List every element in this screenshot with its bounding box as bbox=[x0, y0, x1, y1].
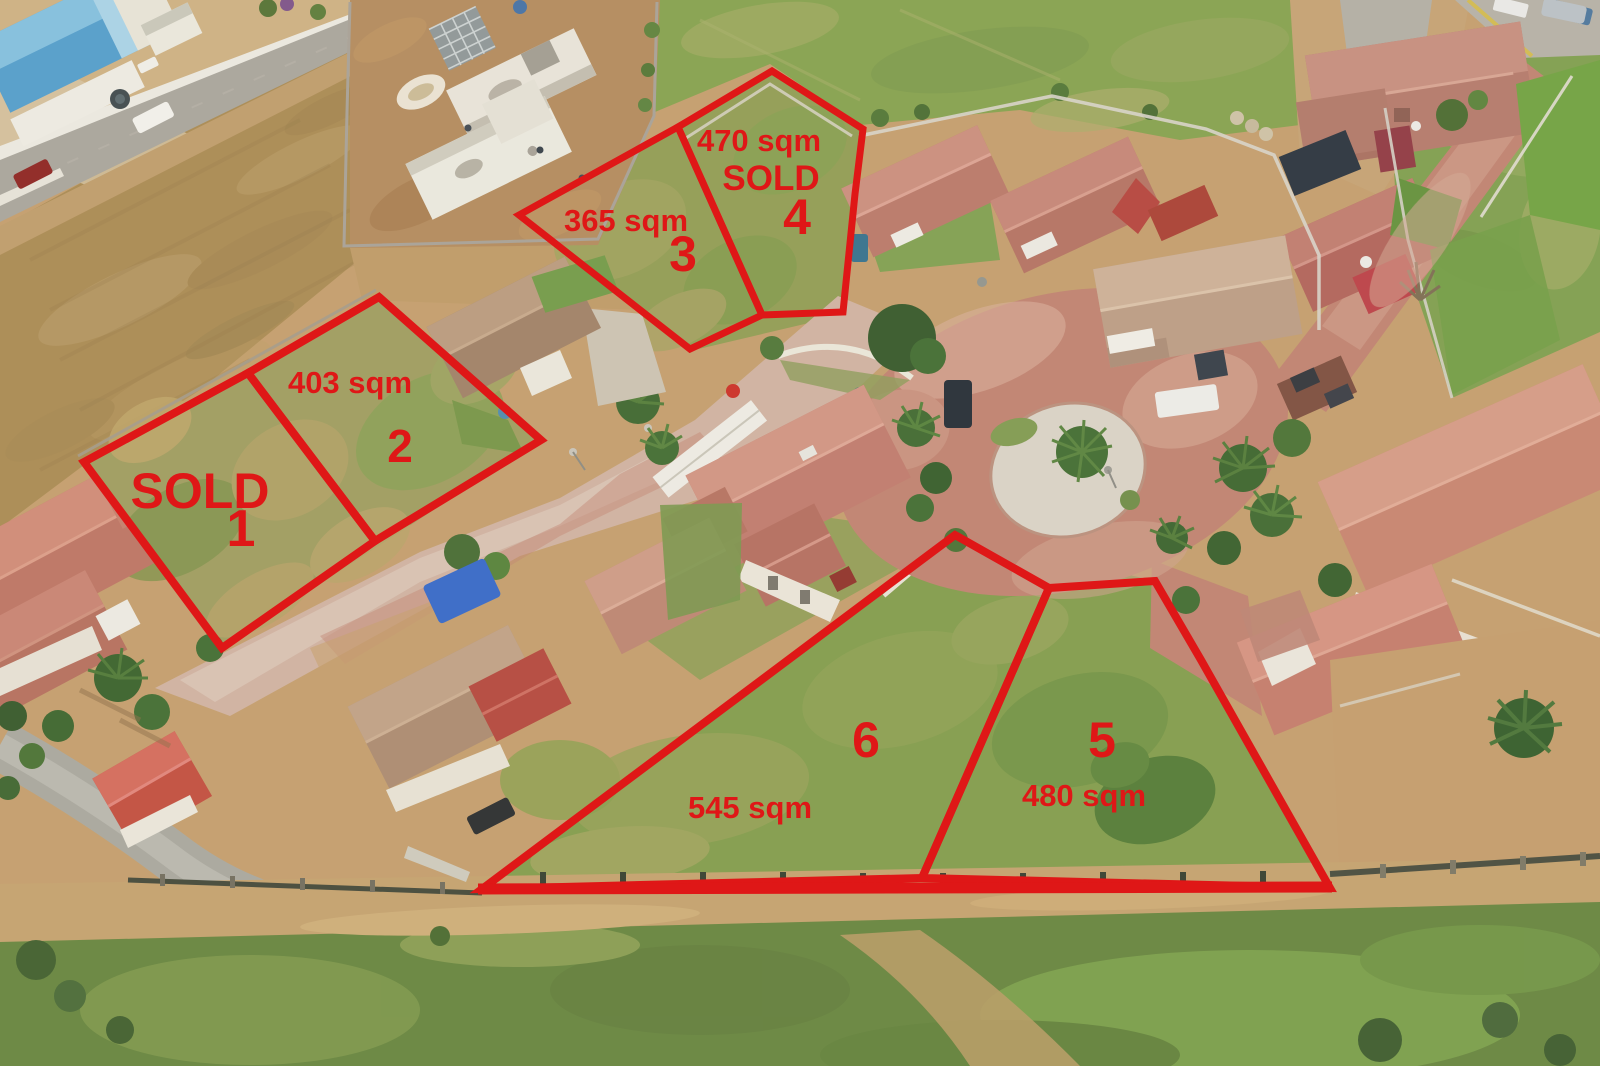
svg-text:403 sqm: 403 sqm bbox=[288, 365, 412, 400]
svg-text:1: 1 bbox=[227, 500, 256, 558]
svg-text:4: 4 bbox=[783, 189, 811, 245]
svg-text:5: 5 bbox=[1088, 712, 1116, 768]
svg-text:470 sqm: 470 sqm bbox=[697, 123, 821, 158]
svg-text:3: 3 bbox=[669, 226, 697, 282]
svg-text:2: 2 bbox=[387, 420, 413, 472]
svg-text:6: 6 bbox=[852, 712, 880, 768]
svg-text:545 sqm: 545 sqm bbox=[688, 790, 812, 825]
svg-text:480 sqm: 480 sqm bbox=[1022, 778, 1146, 813]
